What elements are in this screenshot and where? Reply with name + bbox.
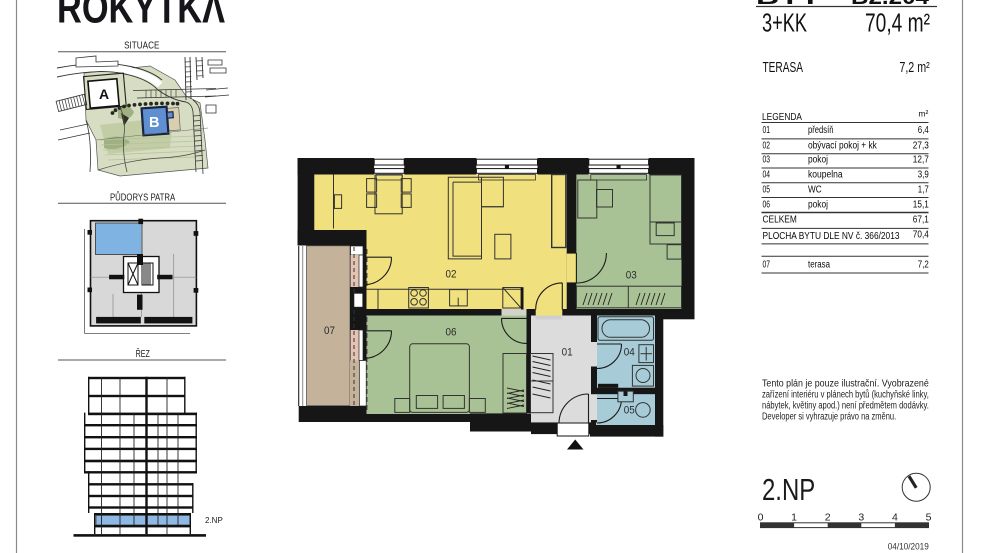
svg-text:terasa: terasa	[808, 259, 830, 270]
svg-text:ROKYTKΛ: ROKYTKΛ	[57, 0, 226, 33]
svg-text:2.NP: 2.NP	[762, 473, 815, 507]
svg-text:06: 06	[763, 200, 771, 211]
svg-text:koupelna: koupelna	[808, 170, 843, 181]
svg-text:7,2 m²: 7,2 m²	[899, 60, 929, 76]
svg-text:07: 07	[324, 325, 335, 337]
svg-text:27,3: 27,3	[913, 140, 929, 151]
svg-text:nábytek, květiny apod.) není p: nábytek, květiny apod.) není předmětem d…	[762, 400, 929, 411]
svg-text:3+KK: 3+KK	[762, 10, 807, 38]
svg-text:A: A	[99, 86, 109, 102]
svg-text:01: 01	[763, 125, 771, 136]
svg-text:m²: m²	[918, 109, 928, 119]
svg-text:obývací pokoj + kk: obývací pokoj + kk	[808, 140, 878, 151]
svg-text:TERASA: TERASA	[763, 60, 804, 76]
svg-text:3: 3	[858, 512, 864, 524]
svg-text:05: 05	[624, 405, 635, 417]
svg-text:B: B	[149, 115, 159, 131]
svg-text:3,9: 3,9	[918, 170, 929, 181]
svg-text:70,4 m²: 70,4 m²	[865, 10, 930, 38]
svg-text:15,1: 15,1	[913, 200, 929, 211]
svg-text:B2.204: B2.204	[851, 0, 929, 9]
svg-text:07: 07	[763, 259, 771, 270]
svg-text:předsíň: předsíň	[808, 125, 834, 136]
svg-text:67,1: 67,1	[913, 215, 929, 226]
svg-text:PŮDORYS PATRA: PŮDORYS PATRA	[110, 190, 175, 203]
svg-text:2: 2	[825, 512, 831, 524]
svg-text:Developer si vyhrazuje právo n: Developer si vyhrazuje právo na změnu.	[762, 411, 896, 422]
svg-text:CELKEM: CELKEM	[763, 215, 797, 226]
svg-text:1,7: 1,7	[918, 184, 929, 195]
svg-text:02: 02	[763, 140, 771, 151]
svg-text:4: 4	[892, 512, 898, 524]
svg-text:0: 0	[758, 512, 764, 524]
svg-text:04: 04	[624, 347, 635, 359]
svg-text:1: 1	[791, 512, 797, 524]
svg-text:WC: WC	[808, 184, 822, 195]
svg-text:PLOCHA BYTU DLE NV č. 366/2013: PLOCHA BYTU DLE NV č. 366/2013	[763, 231, 900, 242]
svg-text:5: 5	[926, 512, 932, 524]
svg-text:SITUACE: SITUACE	[124, 41, 160, 52]
svg-text:BYT: BYT	[756, 0, 820, 9]
svg-text:7,2: 7,2	[918, 259, 929, 270]
svg-text:2.NP: 2.NP	[205, 516, 223, 525]
svg-text:01: 01	[562, 347, 573, 359]
svg-text:04/10/2019: 04/10/2019	[888, 542, 929, 553]
svg-text:04: 04	[763, 170, 771, 181]
svg-text:6,4: 6,4	[918, 125, 929, 136]
svg-text:zařízení interiéru v plánech b: zařízení interiéru v plánech bytů (kuchy…	[762, 389, 929, 401]
svg-text:02: 02	[446, 269, 457, 281]
svg-text:pokoj: pokoj	[808, 154, 828, 165]
svg-text:70,4: 70,4	[913, 230, 929, 241]
svg-text:LEGENDA: LEGENDA	[762, 111, 802, 123]
svg-text:03: 03	[763, 154, 771, 165]
svg-text:12,7: 12,7	[913, 154, 929, 165]
svg-text:Tento plán je pouze ilustrační: Tento plán je pouze ilustrační. Vyobraze…	[762, 379, 929, 390]
svg-text:05: 05	[763, 184, 771, 195]
svg-text:pokoj: pokoj	[808, 200, 828, 211]
svg-text:06: 06	[446, 327, 457, 339]
svg-text:ŘEZ: ŘEZ	[136, 347, 150, 360]
svg-text:03: 03	[626, 270, 637, 282]
